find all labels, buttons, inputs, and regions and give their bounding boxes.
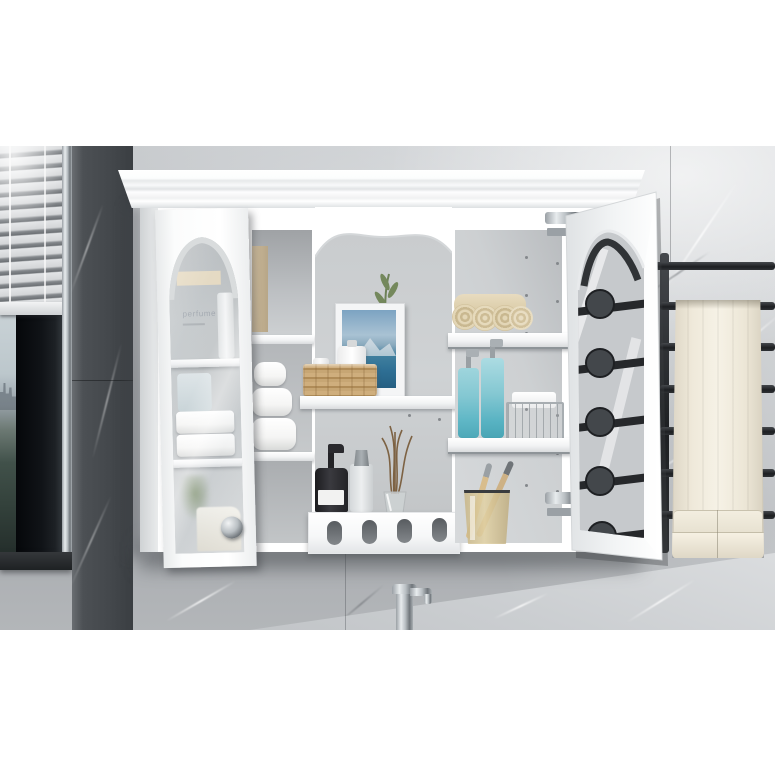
window-dark-pane <box>16 314 62 554</box>
bottle-label <box>318 490 344 505</box>
faucet-body <box>396 592 413 630</box>
glass-highlight <box>470 496 475 540</box>
woven-basket <box>303 364 377 396</box>
frosted-spray-bottle <box>350 464 373 512</box>
rolled-towel <box>254 362 286 386</box>
dark-marble-pillar <box>72 146 133 630</box>
column-shelf <box>248 452 314 461</box>
teal-soap-bottle <box>458 368 479 438</box>
faucet-nozzle <box>424 594 432 604</box>
marble-vein <box>166 580 236 622</box>
drawer-cutout <box>362 520 377 544</box>
shelf-pin-hole <box>408 414 411 417</box>
column-shelf <box>248 335 314 344</box>
pump-nozzle <box>490 339 503 347</box>
pump-nozzle <box>328 444 344 453</box>
towel-crease <box>717 510 718 558</box>
pump-stem <box>466 356 471 368</box>
left-glass-door: perfume <box>155 208 257 568</box>
bottle-cap <box>347 340 357 347</box>
shelf-pin-hole <box>525 256 528 259</box>
perfume-box-side <box>252 246 268 332</box>
tile-seam <box>670 146 671 264</box>
marble-vein <box>92 343 123 460</box>
open-glass-door <box>552 186 670 568</box>
beige-rolled-towels <box>452 292 530 334</box>
drawer-cutout <box>432 518 447 542</box>
arched-valance <box>315 207 452 261</box>
drawer-cutout <box>327 521 342 545</box>
window-frame-mullion <box>62 146 72 570</box>
towel-roll-end <box>509 306 533 330</box>
window-blinds <box>0 146 68 304</box>
blind-cord <box>9 146 11 304</box>
blind-cord <box>44 146 46 304</box>
spray-cap <box>354 450 369 466</box>
bathroom-photo: perfume <box>0 146 775 630</box>
window-sill <box>0 552 72 570</box>
black-soap-dispenser <box>315 468 348 512</box>
blinds-bottom-rail <box>0 302 68 315</box>
teal-soap-bottle <box>481 358 504 438</box>
marble-vein <box>70 204 104 294</box>
rolled-towel <box>252 388 292 416</box>
toothbrush-glass <box>462 490 512 544</box>
middle-shelf <box>300 396 458 409</box>
pump-nozzle <box>466 349 479 357</box>
open-column-cubby-top <box>252 230 312 335</box>
shelf-pin-hole <box>438 418 441 421</box>
pump-stem <box>490 346 495 358</box>
reed-diffuser <box>372 422 418 514</box>
glass-rim <box>462 490 512 493</box>
utility-drawer <box>308 512 460 554</box>
rolled-towel <box>252 418 296 450</box>
pump-stem <box>328 452 334 468</box>
drawer-cutout <box>397 519 412 543</box>
marble-vein <box>70 495 113 587</box>
window-city-view <box>0 314 16 554</box>
city-skyline <box>0 380 16 410</box>
tile-seam <box>72 380 133 381</box>
bath-towel <box>672 300 764 558</box>
open-column-cubby-bottom <box>252 461 312 543</box>
